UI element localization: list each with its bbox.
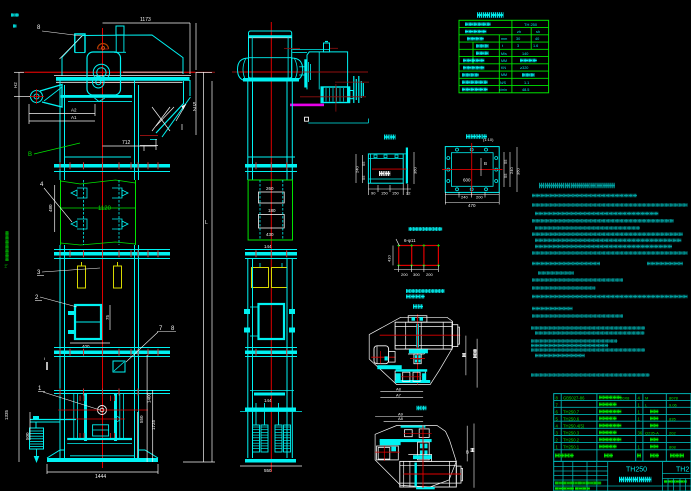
svg-text:H2: H2 xyxy=(13,82,18,88)
svg-text:500: 500 xyxy=(25,432,30,440)
svg-text:410: 410 xyxy=(387,255,392,262)
svg-text:TH250.1: TH250.1 xyxy=(563,445,580,450)
svg-text:1444: 1444 xyxy=(95,474,106,480)
svg-text:835: 835 xyxy=(669,416,676,421)
svg-text:200: 200 xyxy=(401,272,408,277)
svg-text:3: 3 xyxy=(517,44,519,48)
svg-text:430: 430 xyxy=(266,232,274,237)
svg-text:36: 36 xyxy=(638,431,643,436)
svg-text:sh: sh xyxy=(536,30,540,34)
svg-text:TH 250: TH 250 xyxy=(524,22,538,27)
svg-text:300: 300 xyxy=(413,272,420,277)
svg-text:1120: 1120 xyxy=(98,206,112,212)
svg-text:55: 55 xyxy=(503,159,508,164)
svg-text:360: 360 xyxy=(516,168,521,175)
svg-text:1.6: 1.6 xyxy=(533,44,538,48)
svg-text:48.5: 48.5 xyxy=(522,88,529,92)
svg-text:TH250.6: TH250.6 xyxy=(563,416,580,421)
svg-text:MM: MM xyxy=(501,73,507,77)
svg-text:mm: mm xyxy=(501,37,507,41)
svg-text:A2: A2 xyxy=(71,108,77,113)
svg-text:6-φ11: 6-φ11 xyxy=(404,238,416,243)
svg-text:55: 55 xyxy=(361,175,366,180)
svg-text:712: 712 xyxy=(122,140,131,146)
svg-text:1725: 1725 xyxy=(151,419,156,430)
svg-text:22: 22 xyxy=(406,191,411,196)
svg-text:Q235-A: Q235-A xyxy=(645,431,659,436)
svg-text:MM: MM xyxy=(501,59,507,63)
svg-text:200: 200 xyxy=(426,272,433,277)
svg-text:TH2: TH2 xyxy=(676,467,689,474)
svg-text:40: 40 xyxy=(535,37,539,41)
svg-text:B: B xyxy=(28,152,32,158)
svg-text:L: L xyxy=(205,220,208,226)
svg-text:1173: 1173 xyxy=(140,17,151,23)
svg-text:≥320: ≥320 xyxy=(520,66,528,70)
svg-text:GB5027-86: GB5027-86 xyxy=(563,395,585,400)
svg-text:N/S: N/S xyxy=(500,81,507,85)
svg-text:90: 90 xyxy=(371,191,376,196)
svg-text:550: 550 xyxy=(264,468,272,473)
svg-text:r/min: r/min xyxy=(499,88,507,92)
svg-text:2: 2 xyxy=(193,107,196,113)
svg-text:30: 30 xyxy=(516,37,520,41)
svg-text:I: I xyxy=(44,356,45,361)
svg-text:55: 55 xyxy=(361,161,366,166)
svg-text:9.06: 9.06 xyxy=(669,402,678,407)
svg-text:zh: zh xyxy=(517,30,521,34)
svg-text:550: 550 xyxy=(139,415,144,423)
svg-text:(1:10): (1:10) xyxy=(483,137,494,142)
svg-text:1.1: 1.1 xyxy=(524,81,529,85)
svg-text:A8: A8 xyxy=(396,386,402,391)
svg-text:KN: KN xyxy=(501,66,506,70)
svg-text:A1: A1 xyxy=(71,115,77,120)
svg-text:144: 144 xyxy=(264,244,272,249)
svg-text:202: 202 xyxy=(669,431,676,436)
svg-text:150: 150 xyxy=(392,191,399,196)
svg-text:140: 140 xyxy=(522,52,528,56)
svg-text:H(: H( xyxy=(3,263,8,268)
svg-text:8078: 8078 xyxy=(669,395,679,400)
svg-text:240: 240 xyxy=(509,167,514,174)
svg-text:M/s: M/s xyxy=(501,52,507,56)
svg-text:144: 144 xyxy=(264,398,272,403)
svg-text:150: 150 xyxy=(381,191,388,196)
svg-text:200: 200 xyxy=(476,195,483,200)
svg-text:240: 240 xyxy=(461,195,468,200)
svg-text:600: 600 xyxy=(463,178,471,183)
svg-text:240: 240 xyxy=(355,166,360,173)
svg-text:M: M xyxy=(645,395,648,400)
svg-text:470: 470 xyxy=(468,203,476,208)
svg-text:20X8: 20X8 xyxy=(620,395,630,400)
svg-text:A7: A7 xyxy=(396,393,402,398)
svg-text:1335: 1335 xyxy=(4,409,9,420)
svg-text:A8: A8 xyxy=(398,416,404,421)
svg-text:808: 808 xyxy=(669,445,676,450)
svg-text:TH250.4(5): TH250.4(5) xyxy=(563,424,585,429)
svg-text:400: 400 xyxy=(82,344,90,349)
svg-text:TH250.2: TH250.2 xyxy=(563,438,580,443)
svg-text:TH250.7: TH250.7 xyxy=(563,410,580,415)
svg-text:55: 55 xyxy=(503,173,508,178)
svg-text:B: B xyxy=(466,450,469,455)
svg-text:360: 360 xyxy=(413,167,418,174)
svg-text:TH250.3: TH250.3 xyxy=(563,431,580,436)
svg-text:TH250: TH250 xyxy=(626,467,647,474)
svg-text:180: 180 xyxy=(268,208,276,213)
svg-text:480: 480 xyxy=(48,204,53,212)
svg-text:75: 75 xyxy=(105,314,110,320)
svg-text:B: B xyxy=(484,161,487,166)
svg-text:260: 260 xyxy=(266,186,274,191)
